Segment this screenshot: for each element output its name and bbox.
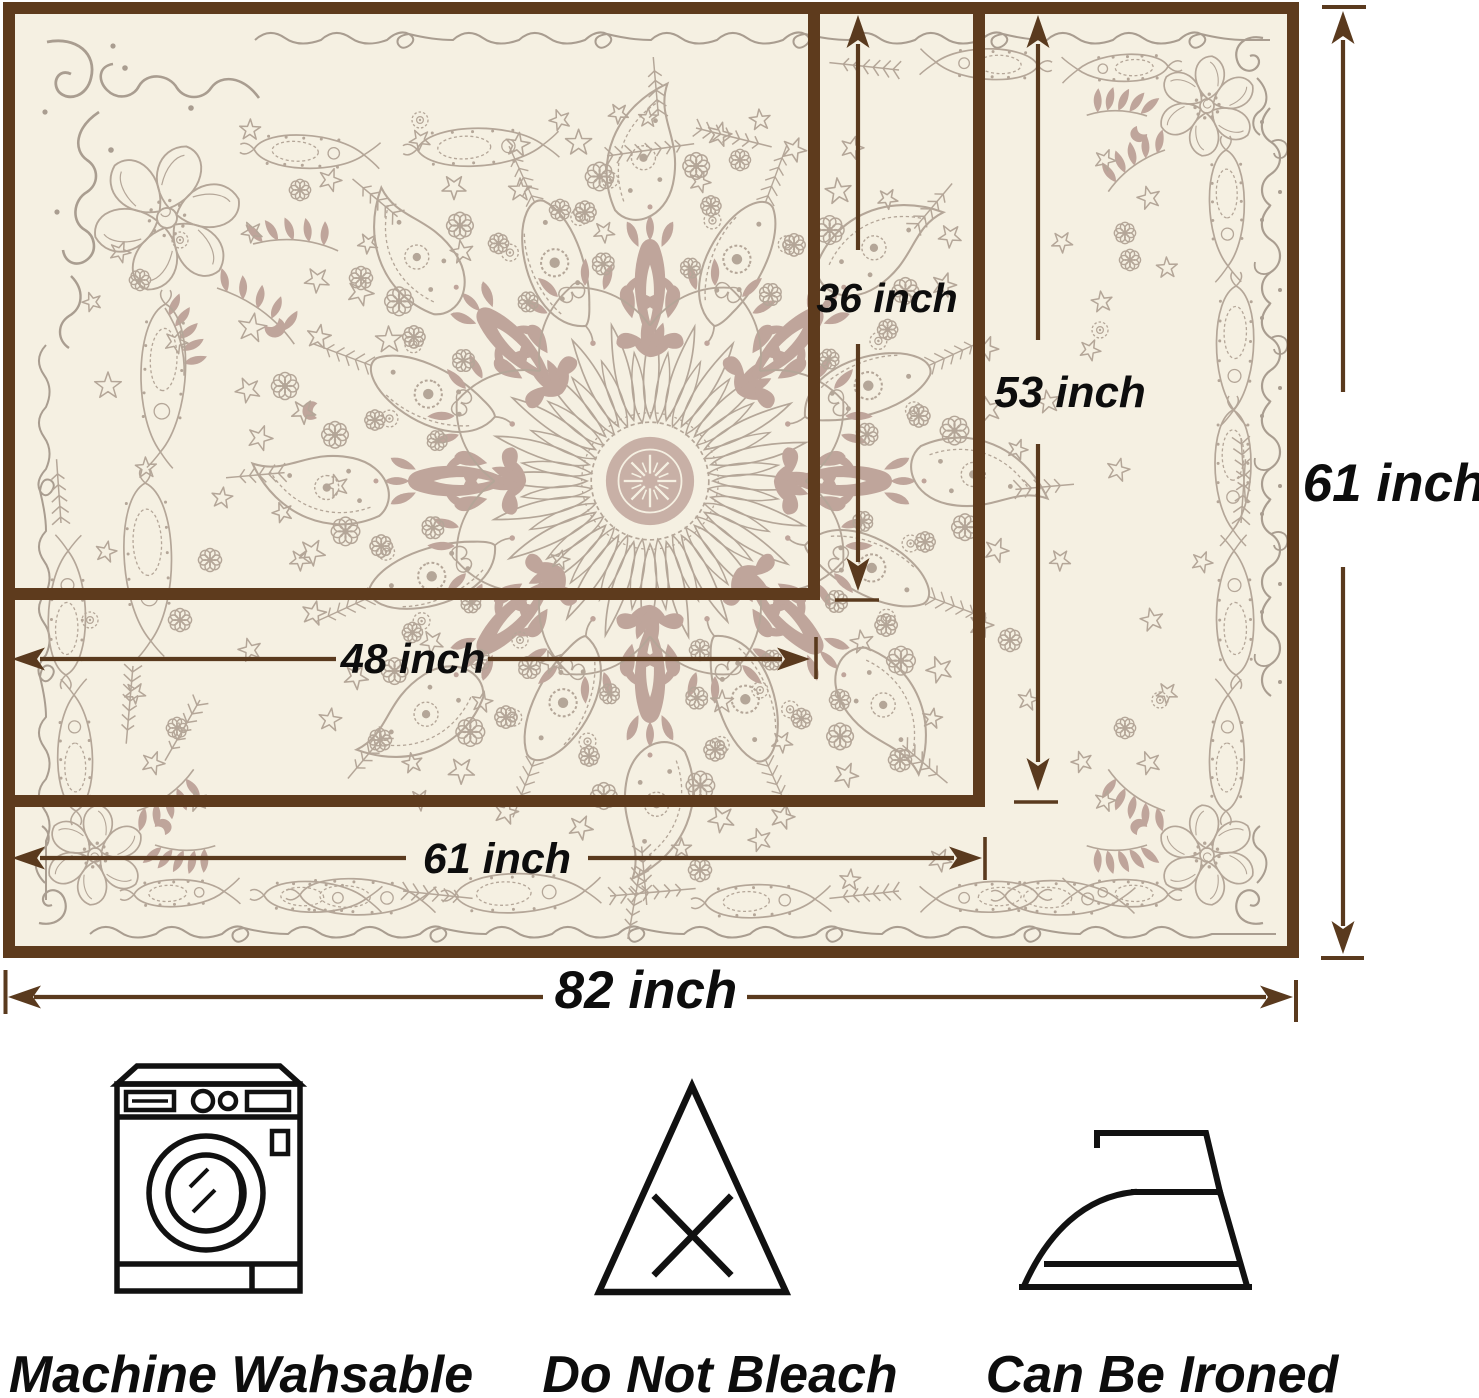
svg-text:Do Not Bleach: Do Not Bleach bbox=[542, 1346, 897, 1398]
svg-text:61 inch: 61 inch bbox=[423, 835, 571, 883]
svg-text:Machine Wahsable: Machine Wahsable bbox=[9, 1346, 473, 1398]
svg-text:53 inch: 53 inch bbox=[994, 368, 1146, 417]
svg-text:36 inch: 36 inch bbox=[816, 275, 957, 321]
svg-text:Can Be Ironed: Can Be Ironed bbox=[986, 1346, 1340, 1398]
svg-text:48 inch: 48 inch bbox=[340, 635, 486, 682]
svg-text:82 inch: 82 inch bbox=[555, 961, 738, 1020]
svg-text:61 inch: 61 inch bbox=[1303, 454, 1479, 513]
